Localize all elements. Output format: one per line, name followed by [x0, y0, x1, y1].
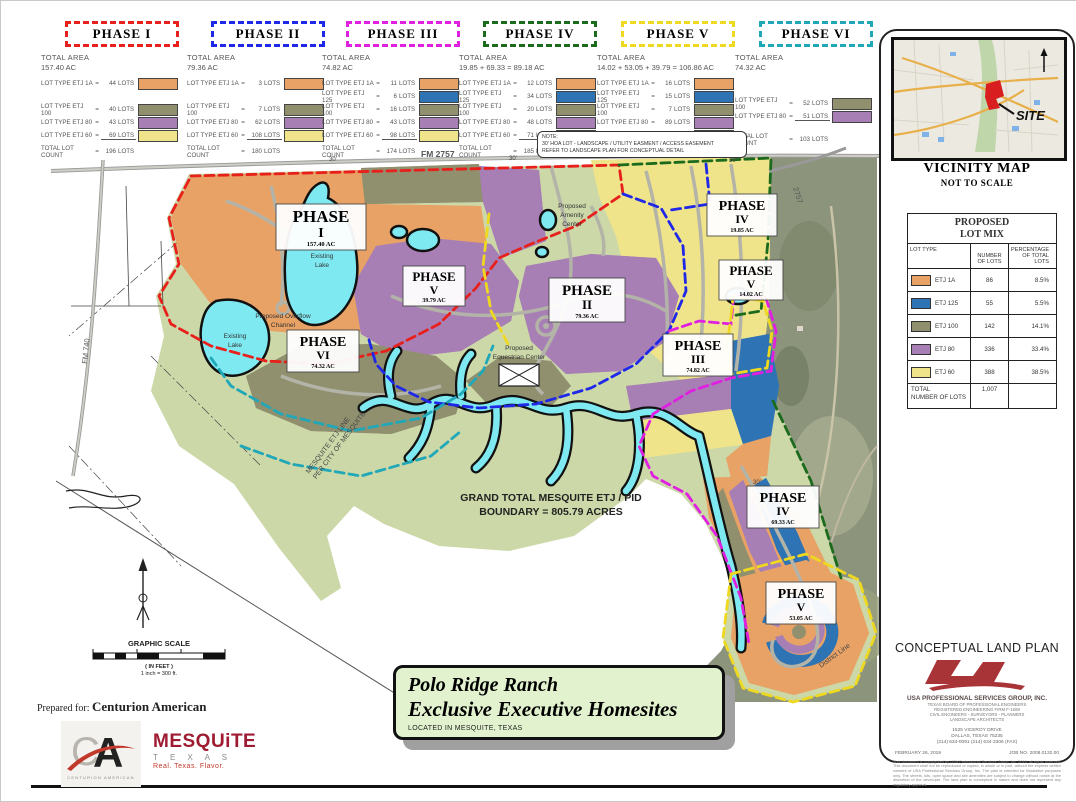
- land-plan-map: FM 2757 2757 FM 740 30' 30' 30' 30' Exis…: [31, 146, 879, 706]
- lot-row: LOT TYPE ETJ 1A=11LOTS: [322, 77, 464, 90]
- svg-text:I: I: [318, 226, 323, 241]
- firm-line: LANDSCAPE ARCHITECTS: [889, 717, 1065, 722]
- phase-2-title-box: PHASE II: [211, 21, 325, 47]
- lot-mix-total-row: TOTALNUMBER OF LOTS1,007: [908, 384, 1056, 408]
- total-area-label: TOTAL AREA: [735, 53, 877, 62]
- lot-color-swatch: [138, 78, 178, 90]
- phase-legend-3: PHASE III TOTAL AREA 74.82 AC LOT TYPE E…: [322, 21, 464, 158]
- lot-color-swatch: [694, 104, 734, 116]
- scale-unit: ( IN FEET ): [145, 664, 173, 670]
- svg-text:IV: IV: [735, 212, 749, 226]
- centurion-american-logo: C A CENTURION AMERICAN: [61, 721, 141, 787]
- lot-color-swatch: [911, 321, 931, 332]
- lot-row: LOT TYPE ETJ 125=6LOTS: [322, 90, 464, 103]
- map-label-phase-6: PHASE VI 74.32 AC: [287, 330, 359, 372]
- lot-row: LOT TYPE ETJ 60=98LOTS: [322, 129, 464, 142]
- north-arrow-icon: [137, 558, 149, 628]
- equals: =: [93, 80, 101, 87]
- note-line: REFER TO LANDSCAPE PLAN FOR CONCEPTUAL D…: [542, 148, 742, 155]
- lot-color-swatch: [284, 130, 324, 142]
- lot-type-label: LOT TYPE ETJ 1A: [41, 80, 93, 87]
- map-label-phase-1: PHASE I 157.40 AC: [276, 204, 366, 250]
- lot-row: LOT TYPE ETJ 100=20LOTS: [459, 103, 601, 116]
- ca-logo-wordmark: CENTURION AMERICAN: [67, 775, 134, 780]
- lot-row: LOT TYPE ETJ 1A=16LOTS: [597, 77, 739, 90]
- project-location: LOCATED IN MESQUITE, TEXAS: [408, 725, 710, 732]
- lot-color-swatch: [556, 91, 596, 103]
- phase-legend-6: PHASE VI TOTAL AREA 74.32 AC LOT TYPE ET…: [735, 21, 877, 146]
- lot-row: LOT TYPE ETJ 100=7LOTS: [187, 103, 329, 116]
- total-area-label: TOTAL AREA: [41, 53, 183, 62]
- svg-text:III: III: [691, 352, 705, 366]
- lot-row: LOT TYPE ETJ 80=43LOTS: [41, 116, 183, 129]
- lot-color-swatch: [284, 117, 324, 129]
- firm-disclaimer: This document is copyrighted by USA Prof…: [889, 760, 1065, 788]
- lot-color-swatch: [138, 130, 178, 142]
- svg-text:V: V: [430, 283, 439, 297]
- overflow-channel-label: Proposed Overflow: [255, 313, 311, 320]
- lot-row: LOT TYPE ETJ 125=15LOTS: [597, 90, 739, 103]
- phase-3-area: 74.82 AC: [322, 63, 464, 72]
- plan-sheet: PHASE I TOTAL AREA 157.40 AC LOT TYPE ET…: [0, 0, 1076, 802]
- total-lot-count-row: TOTAL LOT COUNT=103LOTS: [735, 133, 877, 146]
- lot-row: LOT TYPE ETJ 80=43LOTS: [322, 116, 464, 129]
- svg-text:II: II: [582, 297, 592, 312]
- lots-unit: LOTS: [118, 80, 136, 87]
- job-number: JOB NO. 2008.0132.00: [1009, 751, 1059, 756]
- client-name: Centurion American: [92, 699, 206, 714]
- lot-mix-row: ETJ 6038838.5%: [908, 361, 1056, 384]
- lot-color-swatch: [284, 78, 324, 90]
- map-label-phase-5c: PHASE V 53.05 AC: [766, 582, 836, 624]
- project-name: Polo Ridge Ranch: [408, 674, 710, 697]
- graphic-scale-title: GRAPHIC SCALE: [128, 639, 190, 648]
- svg-text:V: V: [797, 600, 806, 614]
- lot-color-swatch: [419, 104, 459, 116]
- lot-mix-header: LOT TYPE NUMBEROF LOTS PERCENTAGEOF TOTA…: [908, 244, 1056, 269]
- conceptual-land-plan-title: CONCEPTUAL LAND PLAN: [881, 641, 1073, 655]
- phase-5-area: 14.02 + 53.05 + 39.79 = 106.86 AC: [597, 63, 739, 72]
- lot-row: LOT TYPE ETJ 80=89LOTS: [597, 116, 739, 129]
- lot-mix-row: ETJ 1A868.5%: [908, 269, 1056, 292]
- usa-logo: [921, 656, 1031, 692]
- lot-color-swatch: [419, 78, 459, 90]
- svg-text:IV: IV: [776, 504, 790, 518]
- phase-4-title: PHASE IV: [505, 26, 574, 41]
- firm-name: USA PROFESSIONAL SERVICES GROUP, INC.: [889, 695, 1065, 702]
- grand-total-label: BOUNDARY = 805.79 ACRES: [479, 506, 622, 518]
- equestrian-center-label: Proposed: [505, 345, 533, 352]
- existing-lake-label: Existing: [311, 253, 334, 260]
- phase-6-title-box: PHASE VI: [759, 21, 873, 47]
- map-label-phase-2: PHASE II 79.36 AC: [549, 278, 625, 322]
- lot-row: LOT TYPE ETJ 1A=12LOTS: [459, 77, 601, 90]
- svg-text:PHASE: PHASE: [412, 269, 455, 284]
- mesquite-tagline: Real. Texas. Flavor.: [153, 763, 256, 770]
- phase-2-area: 79.36 AC: [187, 63, 329, 72]
- lot-color-swatch: [911, 298, 931, 309]
- lot-mix-table: PROPOSEDLOT MIX LOT TYPE NUMBEROF LOTS P…: [907, 213, 1057, 409]
- phase-6-title: PHASE VI: [782, 26, 851, 41]
- phase-4-area: 19.85 + 69.33 = 89.18 AC: [459, 63, 601, 72]
- map-label-phase-3: PHASE III 74.82 AC: [663, 334, 733, 376]
- lot-color-swatch: [911, 275, 931, 286]
- lot-color-swatch: [832, 98, 872, 110]
- lot-mix-title: PROPOSEDLOT MIX: [908, 214, 1056, 244]
- total-area-label: TOTAL AREA: [459, 53, 601, 62]
- scale-ratio: 1 inch = 300 ft.: [141, 671, 178, 677]
- road-label-fm2757: FM 2757: [421, 149, 455, 159]
- amenity-center-label: Center: [562, 221, 582, 228]
- phase-5-title-box: PHASE V: [621, 21, 735, 47]
- project-subtitle: Exclusive Executive Homesites: [408, 697, 710, 722]
- lot-color-swatch: [694, 78, 734, 90]
- mesquite-texas-logo: MESQUiTE T E X A S Real. Texas. Flavor.: [153, 731, 256, 770]
- phase-4-title-box: PHASE IV: [483, 21, 597, 47]
- equestrian-center-symbol: [499, 364, 539, 386]
- mesquite-wordmark: MESQUiTE: [153, 731, 256, 753]
- note-line: NOTE:: [542, 134, 742, 141]
- svg-text:74.32 AC: 74.32 AC: [311, 364, 334, 370]
- lot-row: LOT TYPE ETJ 100=52LOTS: [735, 97, 877, 110]
- lot-mix-row: ETJ 10014214.1%: [908, 315, 1056, 338]
- lot-color-swatch: [138, 117, 178, 129]
- map-label-phase-5b: PHASE V 14.02 AC: [719, 260, 783, 300]
- hoa-note-box: NOTE: 30' HOA LOT - LANDSCAPE / UTILITY …: [537, 131, 747, 158]
- equestrian-center-label: Equestrian Center: [493, 354, 546, 361]
- total-area-label: TOTAL AREA: [187, 53, 329, 62]
- svg-text:V: V: [747, 277, 756, 291]
- map-label-phase-4a: PHASE IV 19.85 AC: [707, 194, 777, 236]
- svg-text:157.40 AC: 157.40 AC: [307, 241, 336, 248]
- existing-lake-label: Lake: [228, 342, 242, 349]
- total-area-label: TOTAL AREA: [597, 53, 739, 62]
- lot-color-swatch: [419, 117, 459, 129]
- svg-text:14.02 AC: 14.02 AC: [739, 292, 762, 298]
- lot-row: LOT TYPE ETJ 100=40LOTS: [41, 103, 183, 116]
- svg-text:19.85 AC: 19.85 AC: [730, 228, 753, 234]
- firm-block: USA PROFESSIONAL SERVICES GROUP, INC. TE…: [889, 695, 1065, 788]
- lot-color-swatch: [911, 344, 931, 355]
- map-label-phase-5a: PHASE V 39.79 AC: [403, 266, 465, 306]
- lot-row: LOT TYPE ETJ 80=51LOTS: [735, 110, 877, 123]
- phase-1-title: PHASE I: [93, 26, 152, 41]
- lot-color-swatch: [419, 91, 459, 103]
- lot-color-swatch: [556, 104, 596, 116]
- svg-text:39.79 AC: 39.79 AC: [422, 298, 445, 304]
- site-label: SITE: [1016, 108, 1045, 123]
- lot-color-swatch: [832, 111, 872, 123]
- grand-total-label: GRAND TOTAL MESQUITE ETJ / PID: [460, 492, 642, 504]
- dim-30ft: 30': [329, 157, 337, 163]
- lot-color-swatch: [138, 104, 178, 116]
- lot-color-swatch: [419, 130, 459, 142]
- phase-2-title: PHASE II: [236, 26, 301, 41]
- lot-row: LOT TYPE ETJ 100=7LOTS: [597, 103, 739, 116]
- vicinity-map: SITE: [891, 37, 1067, 161]
- lot-row: LOT TYPE ETJ 80=62LOTS: [187, 116, 329, 129]
- phase-3-title: PHASE III: [368, 26, 439, 41]
- vicinity-map-subtitle: NOT TO SCALE: [881, 178, 1073, 188]
- note-line: 30' HOA LOT - LANDSCAPE / UTILITY EASMEN…: [542, 141, 742, 148]
- lot-row: LOT TYPE ETJ 60=69LOTS: [41, 129, 183, 142]
- phase-1-area: 157.40 AC: [41, 63, 183, 72]
- overflow-channel-label: Channel: [271, 322, 296, 329]
- lot-color-swatch: [694, 91, 734, 103]
- lot-row: LOT TYPE ETJ 1A=44LOTS: [41, 77, 183, 90]
- phase-3-title-box: PHASE III: [346, 21, 460, 47]
- prepared-for: Prepared for: Centurion American: [37, 699, 206, 715]
- amenity-center-label: Amenity: [560, 212, 584, 219]
- lot-color-swatch: [911, 367, 931, 378]
- lot-mix-row: ETJ 8033633.4%: [908, 338, 1056, 361]
- total-area-label: TOTAL AREA: [322, 53, 464, 62]
- prepared-for-label: Prepared for:: [37, 703, 89, 714]
- svg-text:53.05 AC: 53.05 AC: [789, 616, 812, 622]
- right-panel: SITE VICINITY MAP NOT TO SCALE PROPOSEDL…: [879, 29, 1075, 763]
- svg-text:69.33 AC: 69.33 AC: [771, 520, 794, 526]
- svg-text:79.36 AC: 79.36 AC: [575, 314, 598, 320]
- lot-row: LOT TYPE ETJ 60=108LOTS: [187, 129, 329, 142]
- existing-lake-label: Lake: [315, 262, 329, 269]
- project-title-block: Polo Ridge Ranch Exclusive Executive Hom…: [393, 665, 725, 740]
- lot-mix-row: ETJ 125555.5%: [908, 292, 1056, 315]
- lot-row: LOT TYPE ETJ 125=34LOTS: [459, 90, 601, 103]
- firm-phone: (214) 634-0091 (214) 634-3306 (FAX): [889, 740, 1065, 746]
- phase-5-title: PHASE V: [647, 26, 710, 41]
- graphic-scale: GRAPHIC SCALE ( IN FEET ) 1 inch = 300 f…: [93, 639, 225, 677]
- lot-row: LOT TYPE ETJ 1A=3LOTS: [187, 77, 329, 90]
- dim-30ft: 30': [753, 480, 761, 486]
- amenity-center-label: Proposed: [558, 203, 586, 210]
- lot-color-swatch: [694, 117, 734, 129]
- lot-color-swatch: [556, 117, 596, 129]
- svg-text:VI: VI: [316, 348, 330, 362]
- existing-lake-label: Existing: [224, 333, 247, 340]
- svg-text:PHASE: PHASE: [293, 207, 350, 226]
- lot-type-label: LOT TYPE ETJ 100: [41, 103, 93, 117]
- phase-6-area: 74.32 AC: [735, 63, 877, 72]
- dim-30ft: 30': [729, 158, 737, 164]
- map-label-phase-4b: PHASE IV 69.33 AC: [747, 486, 819, 528]
- lot-color-swatch: [556, 78, 596, 90]
- svg-text:74.82 AC: 74.82 AC: [686, 368, 709, 374]
- vicinity-map-title: VICINITY MAP: [881, 161, 1073, 177]
- phase-legend-1: PHASE I TOTAL AREA 157.40 AC LOT TYPE ET…: [41, 21, 183, 158]
- lot-count: 44: [101, 80, 118, 87]
- svg-text:PHASE: PHASE: [729, 263, 772, 278]
- lot-row: LOT TYPE ETJ 100=16LOTS: [322, 103, 464, 116]
- phase-legend-2: PHASE II TOTAL AREA 79.36 AC LOT TYPE ET…: [187, 21, 329, 158]
- lot-row: LOT TYPE ETJ 80=48LOTS: [459, 116, 601, 129]
- plan-date: FEBRUARY 26, 2019: [895, 751, 941, 756]
- mesquite-texas: T E X A S: [153, 753, 256, 762]
- lot-color-swatch: [284, 104, 324, 116]
- dim-30ft: 30': [509, 156, 517, 162]
- phase-1-title-box: PHASE I: [65, 21, 179, 47]
